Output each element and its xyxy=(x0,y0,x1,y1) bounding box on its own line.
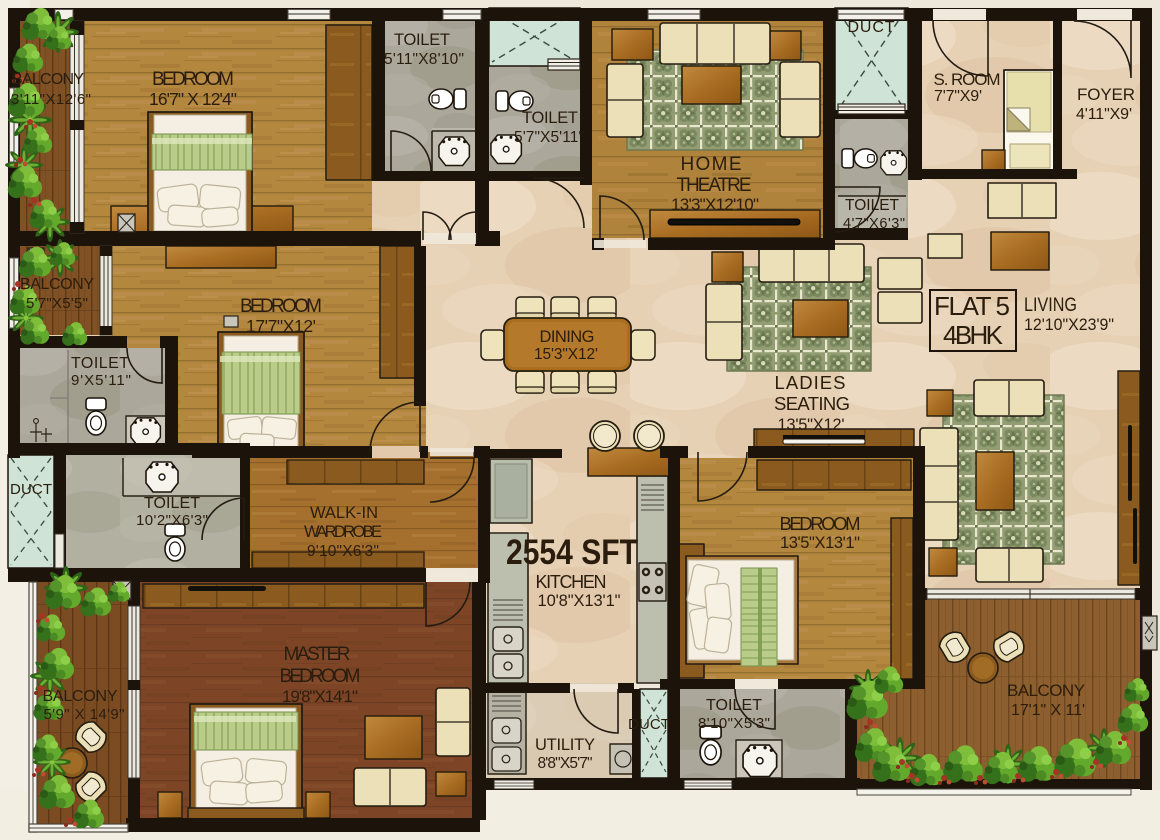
svg-text:17'1" X 11': 17'1" X 11' xyxy=(1011,702,1085,719)
svg-text:10'8"X13'1": 10'8"X13'1" xyxy=(538,592,621,610)
svg-text:SEATING: SEATING xyxy=(774,393,850,414)
svg-text:19'8"X14'1": 19'8"X14'1" xyxy=(282,687,358,706)
svg-text:10'2"X6'3": 10'2"X6'3" xyxy=(136,512,208,529)
svg-text:BEDROOM: BEDROOM xyxy=(152,69,234,90)
svg-text:TOILET: TOILET xyxy=(706,697,762,714)
svg-text:LIVING: LIVING xyxy=(1024,295,1077,316)
svg-text:TOILET: TOILET xyxy=(71,355,129,372)
svg-text:9'X5'11": 9'X5'11" xyxy=(71,372,131,389)
svg-text:BEDROOM: BEDROOM xyxy=(240,296,322,317)
svg-text:BALCONY: BALCONY xyxy=(20,276,94,293)
svg-text:DUCT: DUCT xyxy=(848,19,895,36)
svg-text:WALK-IN: WALK-IN xyxy=(310,504,378,522)
svg-text:8'8"X5'7": 8'8"X5'7" xyxy=(538,755,593,772)
svg-text:DUCT: DUCT xyxy=(10,481,52,498)
svg-text:UTILITY: UTILITY xyxy=(535,736,595,754)
svg-text:9'10"X6'3": 9'10"X6'3" xyxy=(307,543,379,560)
svg-text:HOME: HOME xyxy=(681,154,742,175)
svg-text:13'5"X12': 13'5"X12' xyxy=(778,416,845,434)
svg-text:MASTER: MASTER xyxy=(284,644,351,665)
svg-text:BALCONY: BALCONY xyxy=(12,71,84,88)
svg-text:FLAT 5: FLAT 5 xyxy=(934,291,1010,321)
svg-text:5'7"X5'11": 5'7"X5'11" xyxy=(514,129,584,146)
svg-text:5'7"X5'5": 5'7"X5'5" xyxy=(26,295,88,312)
svg-text:TOILET: TOILET xyxy=(394,31,450,49)
svg-text:4'7"X6'3": 4'7"X6'3" xyxy=(843,216,905,232)
svg-text:TOILET: TOILET xyxy=(144,495,200,512)
svg-text:15'3"X12': 15'3"X12' xyxy=(534,346,598,363)
svg-text:13'5"X13'1": 13'5"X13'1" xyxy=(780,534,860,552)
svg-text:BEDROOM: BEDROOM xyxy=(280,666,361,687)
svg-text:2554 SFT: 2554 SFT xyxy=(506,533,638,572)
svg-text:S. ROOM: S. ROOM xyxy=(934,70,1001,89)
svg-text:3'11"X12'6": 3'11"X12'6" xyxy=(11,91,91,108)
svg-text:17'7"X12': 17'7"X12' xyxy=(246,316,316,336)
svg-text:5'11"X8'10": 5'11"X8'10" xyxy=(384,51,464,68)
svg-text:WARDROBE: WARDROBE xyxy=(304,523,382,541)
svg-text:DINING: DINING xyxy=(540,328,595,346)
svg-text:BALCONY: BALCONY xyxy=(43,688,118,705)
svg-text:DUCT: DUCT xyxy=(628,716,670,733)
svg-text:4'11"X9': 4'11"X9' xyxy=(1076,106,1132,123)
svg-text:THEATRE: THEATRE xyxy=(677,175,752,196)
svg-text:13'3"X12'10": 13'3"X12'10" xyxy=(671,195,759,214)
svg-text:KITCHEN: KITCHEN xyxy=(536,572,607,592)
svg-text:5'9" X 14'9": 5'9" X 14'9" xyxy=(44,706,125,723)
svg-text:TOILET: TOILET xyxy=(845,197,900,214)
svg-text:TOILET: TOILET xyxy=(522,109,578,127)
svg-text:4BHK: 4BHK xyxy=(943,320,1004,350)
svg-text:BALCONY: BALCONY xyxy=(1007,681,1085,700)
svg-text:16'7" X 12'4": 16'7" X 12'4" xyxy=(149,89,237,109)
svg-text:FOYER: FOYER xyxy=(1077,85,1135,104)
svg-text:BEDROOM: BEDROOM xyxy=(780,513,861,534)
svg-text:8'10"X5'3": 8'10"X5'3" xyxy=(698,715,770,732)
svg-text:12'10"X23'9": 12'10"X23'9" xyxy=(1024,316,1114,334)
svg-text:LADIES: LADIES xyxy=(775,372,846,393)
svg-text:7'7"X9': 7'7"X9' xyxy=(934,88,982,105)
